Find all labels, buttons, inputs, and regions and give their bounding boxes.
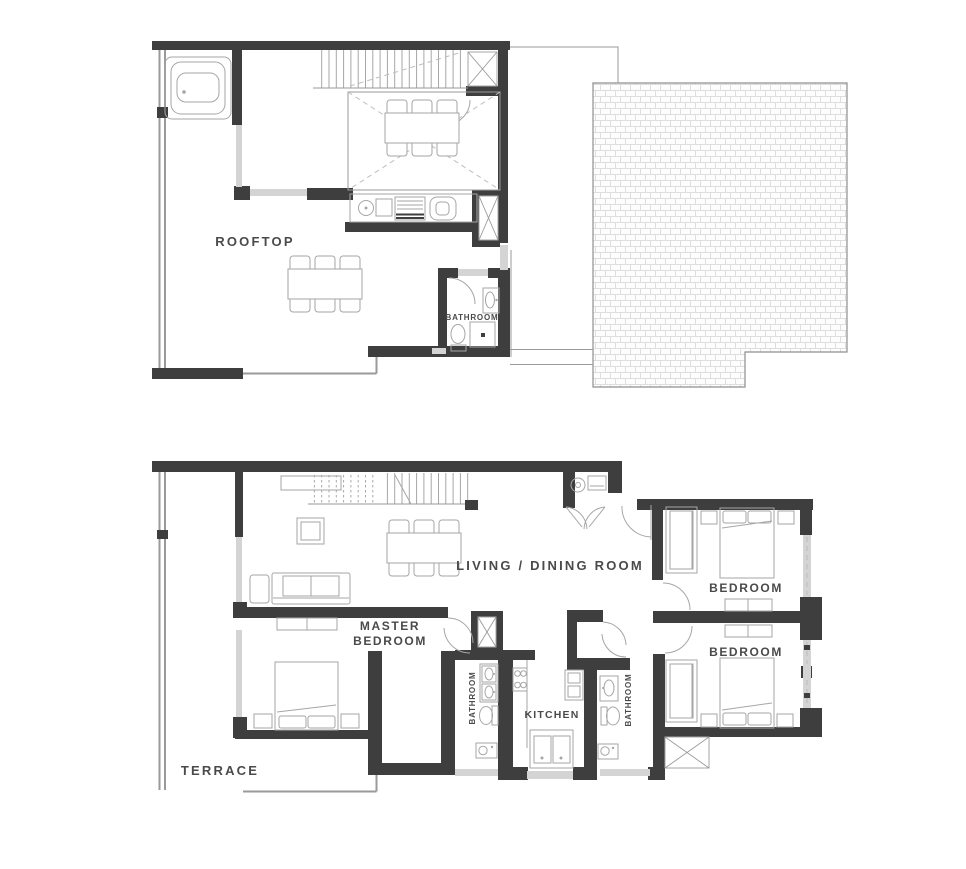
door-swing-icon xyxy=(665,626,692,653)
master-bedroom-label-line1: MASTER xyxy=(360,619,420,633)
terrace-edge-bottom xyxy=(243,775,377,792)
neighbor-boundary xyxy=(510,250,593,365)
floor-plan-canvas: ROOFTOP BATHROOM xyxy=(0,0,966,869)
dining-table-icon xyxy=(385,100,459,156)
nightstand-icon xyxy=(254,714,272,728)
nightstand-icon xyxy=(701,511,717,524)
rooftop-terrace-edge xyxy=(160,50,166,371)
fridge-icon xyxy=(565,670,583,700)
lower-floor-plan: LIVING / DINING ROOM MASTER BEDROOM BEDR… xyxy=(152,461,822,792)
nightstand-icon xyxy=(701,714,717,727)
nightstand-icon xyxy=(777,714,793,727)
bedroom-bottom-label: BEDROOM xyxy=(709,645,783,659)
terrace-edge-left xyxy=(160,472,166,790)
bathroom-left-label: BATHROOM xyxy=(468,672,477,725)
master-bedroom-furniture xyxy=(254,662,359,730)
bathroom-right-label: BATHROOM xyxy=(624,674,633,727)
upper-floor-plan: ROOFTOP BATHROOM xyxy=(152,41,847,387)
nightstand-icon xyxy=(341,714,359,728)
bed-icon xyxy=(701,508,794,578)
coffee-table-icon xyxy=(297,518,324,544)
shaft-icon xyxy=(478,617,496,647)
entry-wc xyxy=(571,476,606,492)
dining-table-icon xyxy=(288,256,362,312)
dresser-icon xyxy=(725,599,772,611)
sink-icon xyxy=(480,664,498,702)
closet-icon xyxy=(666,507,697,573)
closet-icon xyxy=(666,660,697,722)
sink-icon xyxy=(483,288,499,313)
rooftop-kitchen-counter xyxy=(350,194,477,222)
bed-icon xyxy=(701,658,793,728)
shaft-icon xyxy=(479,196,498,240)
upper-bathroom-label: BATHROOM xyxy=(446,313,499,322)
kitchen-label: KITCHEN xyxy=(524,709,579,721)
toilet-icon xyxy=(480,706,499,725)
terrace-post xyxy=(157,530,168,539)
dining-table-icon xyxy=(387,520,461,576)
tv-cabinet xyxy=(277,618,337,630)
sink-icon xyxy=(600,676,618,701)
master-bedroom-label-line2: BEDROOM xyxy=(353,634,427,648)
stove-icon xyxy=(395,197,425,220)
sofa-icon xyxy=(250,573,350,604)
shaft-icon xyxy=(665,737,709,768)
entry-door xyxy=(566,507,605,529)
bedroom-bottom-furniture xyxy=(666,625,793,728)
stairs-icon xyxy=(313,50,468,88)
washer-icon xyxy=(598,744,618,759)
hall-door xyxy=(622,505,651,540)
bed-icon xyxy=(254,662,359,730)
living-dining-label: LIVING / DINING ROOM xyxy=(456,558,644,573)
shower-tray xyxy=(470,322,495,347)
door-swing-icon xyxy=(602,622,626,657)
nightstand-icon xyxy=(778,511,794,524)
roof-icon xyxy=(593,83,847,387)
bathtub-icon xyxy=(165,57,231,119)
door-swing-icon xyxy=(663,583,690,610)
door-swing-icon xyxy=(444,618,473,653)
stove-icon xyxy=(513,668,527,691)
terrace-label: TERRACE xyxy=(181,763,259,778)
rooftop-terrace-edge-bottom xyxy=(243,356,377,374)
washer-icon xyxy=(476,743,497,758)
rooftop-label: ROOFTOP xyxy=(215,234,294,249)
door-swing-icon xyxy=(449,278,475,304)
stairs-icon xyxy=(281,473,478,510)
floor-plan-document: ROOFTOP BATHROOM xyxy=(0,0,966,869)
dresser-icon xyxy=(725,625,772,637)
bathroom-right-fixtures xyxy=(598,676,620,759)
sink-icon xyxy=(530,730,573,768)
cabinet-icon xyxy=(588,476,606,490)
bathroom-left-fixtures xyxy=(476,664,498,758)
toilet-icon xyxy=(601,707,620,725)
bedroom-top-label: BEDROOM xyxy=(709,581,783,595)
roof-outline xyxy=(508,47,618,83)
